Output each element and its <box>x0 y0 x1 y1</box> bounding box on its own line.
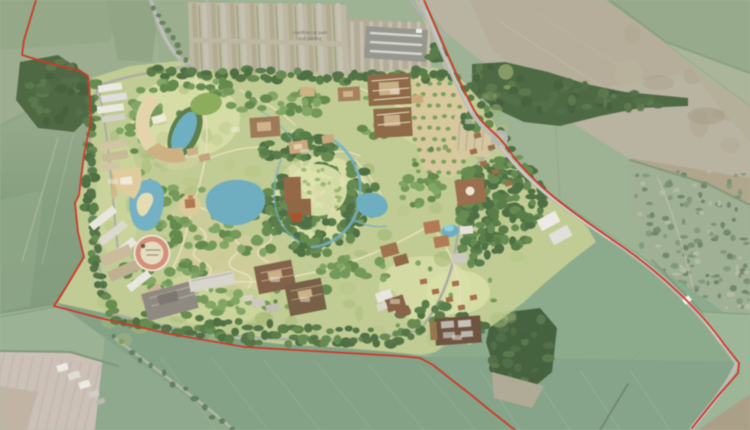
svg-text:and parking: and parking <box>298 36 322 41</box>
svg-text:overflow car park: overflow car park <box>293 30 328 35</box>
